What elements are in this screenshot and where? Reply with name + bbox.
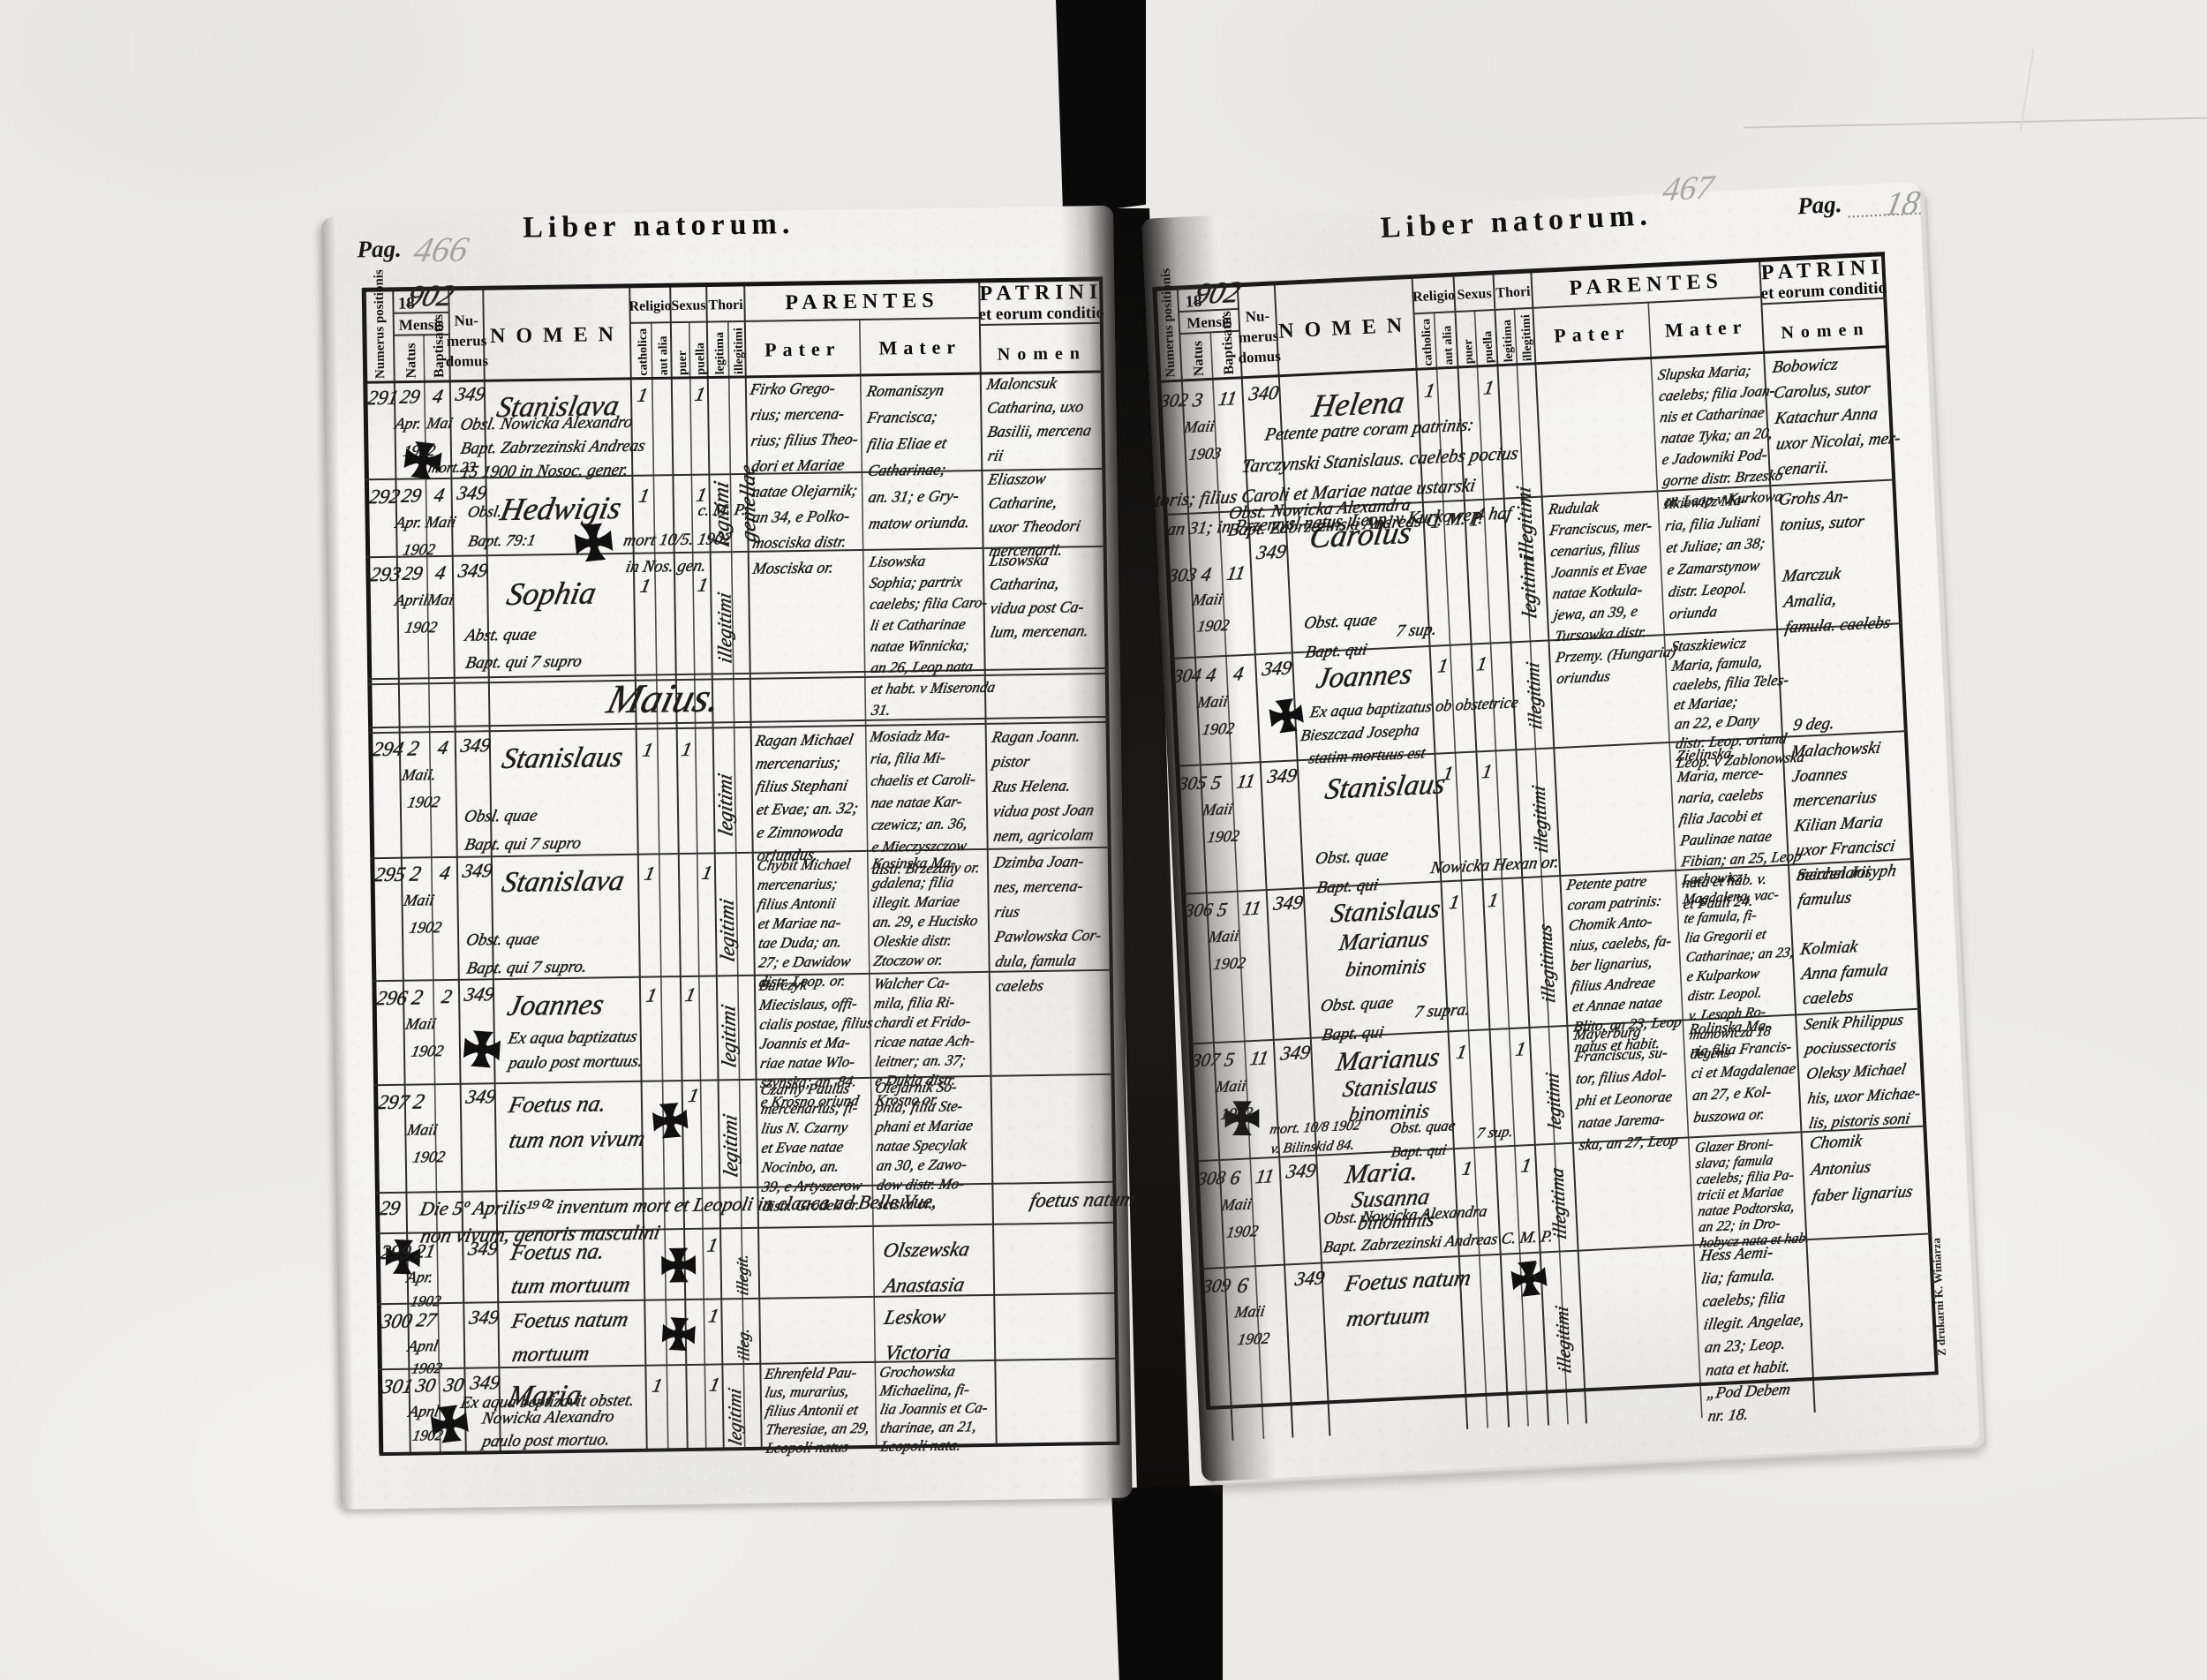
svg-text:467: 467 (1661, 169, 1718, 208)
